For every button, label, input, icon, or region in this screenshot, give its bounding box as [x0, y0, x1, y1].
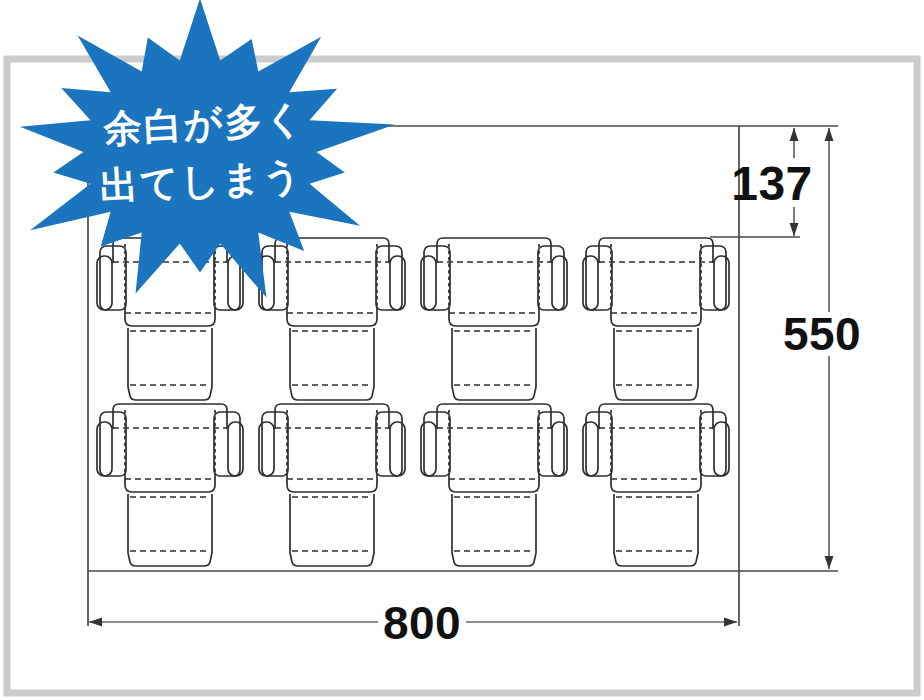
- margin-value: 137: [731, 157, 813, 210]
- starburst-badge: 余白が多く 出てしまう: [20, 0, 395, 298]
- diagram-canvas: 800 550 137 余白が多く: [0, 0, 924, 700]
- dieline-unit: [583, 238, 729, 400]
- arrow-left-icon: [89, 618, 102, 627]
- starburst-shape: [20, 0, 395, 298]
- dieline-unit: [583, 404, 729, 566]
- arrow-down-icon: [825, 556, 834, 569]
- dieline-unit: [259, 238, 405, 400]
- dieline-unit: [97, 404, 243, 566]
- dieline-unit: [421, 238, 567, 400]
- arrow-up-icon: [790, 128, 799, 141]
- arrow-up-icon: [825, 128, 834, 141]
- arrow-down-icon: [790, 223, 799, 236]
- sheet-width-value: 800: [383, 597, 461, 649]
- margin-dimension: 137: [731, 128, 813, 236]
- dieline-unit: [97, 238, 243, 400]
- dieline-grid: [97, 238, 729, 566]
- arrow-right-icon: [724, 618, 737, 627]
- imposition-diagram: 800 550 137 余白が多く: [0, 0, 924, 700]
- dieline-unit: [259, 404, 405, 566]
- dieline-unit: [421, 404, 567, 566]
- width-dimension: 800: [89, 597, 737, 649]
- sheet-height-value: 550: [783, 308, 861, 360]
